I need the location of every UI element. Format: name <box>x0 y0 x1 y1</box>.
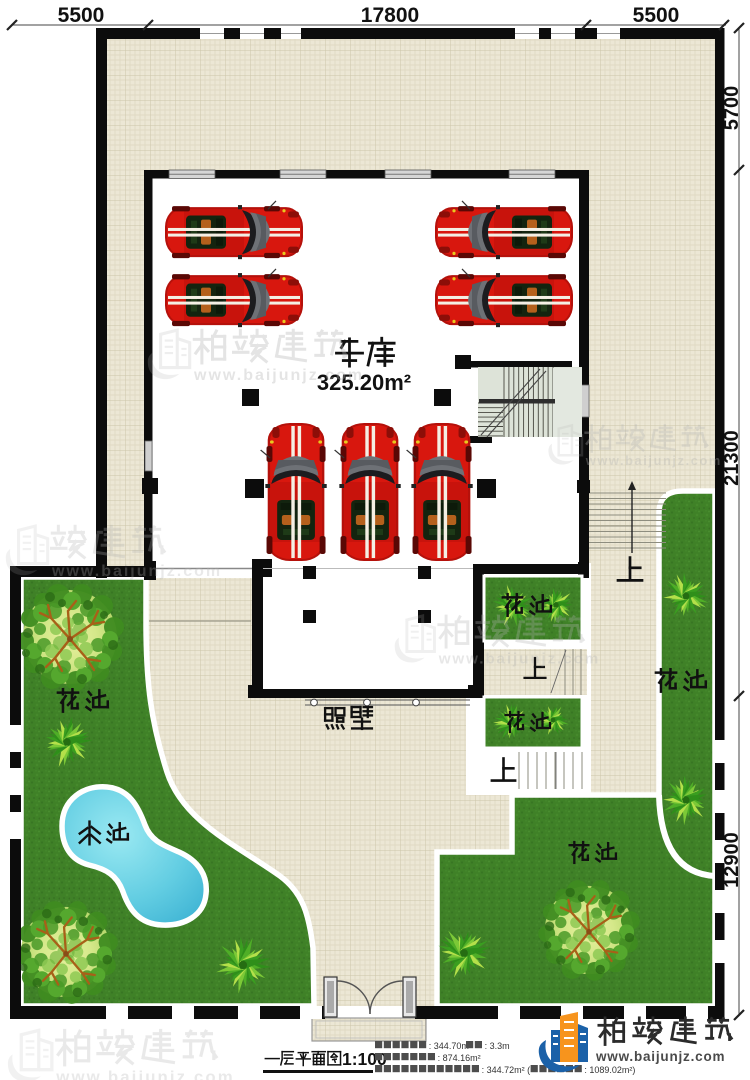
svg-text:: 344.70m²: : 344.70m² <box>429 1041 472 1051</box>
svg-text:5500: 5500 <box>58 4 105 27</box>
svg-text:www.baijunjz.com: www.baijunjz.com <box>51 563 222 580</box>
svg-text:www.baijunjz.com: www.baijunjz.com <box>438 650 600 667</box>
svg-text:www.baijunjz.com: www.baijunjz.com <box>585 453 722 468</box>
svg-text:: 3.3m: : 3.3m <box>485 1041 510 1051</box>
svg-text:www.baijunjz.com: www.baijunjz.com <box>55 1068 234 1080</box>
svg-text:21300: 21300 <box>721 430 743 486</box>
svg-text:: 344.72m² (: : 344.72m² ( <box>482 1065 531 1075</box>
svg-text:www.baijunjz.com: www.baijunjz.com <box>595 1049 725 1064</box>
svg-text:5500: 5500 <box>633 4 680 27</box>
svg-text:www.baijunjz.com: www.baijunjz.com <box>193 367 364 384</box>
svg-text:: 874.16m²: : 874.16m² <box>438 1053 481 1063</box>
svg-text:17800: 17800 <box>361 4 419 27</box>
svg-text:5700: 5700 <box>721 86 743 131</box>
svg-text:: 1089.02m²): : 1089.02m²) <box>584 1065 635 1075</box>
svg-text:12900: 12900 <box>721 832 743 888</box>
